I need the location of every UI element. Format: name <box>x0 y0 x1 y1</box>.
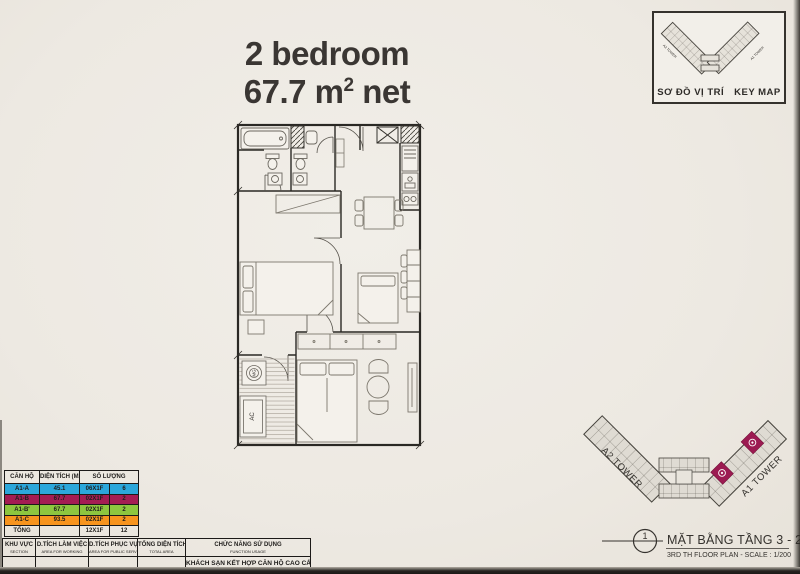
bathtub <box>241 128 289 149</box>
col-header-working-area: D.TÍCH LÀM VIỆC AREA FOR WORKING <box>36 539 89 557</box>
apartment-type-title: 2 bedroom 67.7 m2 net <box>218 36 436 112</box>
sofa <box>401 250 420 312</box>
table-row: A1-C 93.5 02X1F 2 <box>5 515 139 526</box>
key-map-diagram: A2 TOWER A1 TOWER <box>654 13 784 85</box>
header-en: AREA FOR PUBLIC SERVICE <box>89 549 137 554</box>
unit-cell: A1-B <box>5 494 40 505</box>
section-table-header: KHU VỰC SECTION D.TÍCH LÀM VIỆC AREA FOR… <box>3 539 311 557</box>
col-header-total-area: TỔNG DIỆN TÍCH TOTAL AREA <box>138 539 186 557</box>
wardrobe <box>276 195 340 213</box>
washer-label: MG <box>252 369 257 377</box>
kitchen-shaft-x <box>377 127 398 143</box>
round-table-chairs <box>367 359 389 414</box>
col-header-unit: CĂN HỘ <box>5 471 40 484</box>
col-header-service-area: D.TÍCH PHỤC VỤ AREA FOR PUBLIC SERVICE <box>89 539 138 557</box>
detail-number: 1 <box>642 531 647 541</box>
drawing-title-block: 1 MẶT BẰNG TẦNG 3 - 24 3RD TH FLOOR PLAN… <box>598 520 800 564</box>
keymap-caption-en: KEY MAP <box>734 87 781 98</box>
area-cell: 67.7 <box>40 494 80 505</box>
title-area-sup: 2 <box>344 75 354 96</box>
total-label-cell: TỔNG <box>5 526 40 537</box>
door-swings <box>264 127 363 381</box>
col-header-section: KHU VỰC SECTION <box>3 539 36 557</box>
daybed <box>358 273 398 323</box>
area-cell: 67.7 <box>40 505 80 516</box>
unit-cell: A1-C <box>5 515 40 526</box>
kitchen-sink <box>402 173 418 191</box>
apartment-floor-plan: MG AC <box>228 118 432 452</box>
bedroom1-cabinet <box>298 334 396 349</box>
shaft-hatched <box>291 126 304 148</box>
title-area-value: 67.7 m <box>244 73 344 110</box>
scan-edge-bottom <box>0 567 800 574</box>
dining-table <box>355 197 403 229</box>
tv-cabinet <box>408 363 417 412</box>
stove <box>402 193 418 205</box>
kitchen-shaft-hatched <box>401 126 419 143</box>
tower-site-diagram: A2 TOWER A1 TOWER <box>578 398 800 522</box>
table-row: A1-B' 67.7 02X1F 2 <box>5 505 139 516</box>
qty-floor-cell: 02X1F <box>80 515 110 526</box>
plan-title-vi: MẶT BẰNG TẦNG 3 - 24 <box>667 532 800 547</box>
qty-cell: 2 <box>110 515 139 526</box>
ac-label: AC <box>250 412 256 421</box>
header-vi: D.TÍCH LÀM VIỆC <box>36 542 88 549</box>
unit-summary-table: CĂN HỘ DIỆN TÍCH (M2) SỐ LƯỢNG A1-A 45.1… <box>4 470 139 537</box>
header-en: TOTAL AREA <box>138 549 185 554</box>
col-header-area: DIỆN TÍCH (M2) <box>40 471 80 484</box>
table-row: A1-A 45.1 06X1F 6 <box>5 484 139 495</box>
header-vi: D.TÍCH PHỤC VỤ <box>89 542 137 549</box>
qty-floor-cell: 02X1F <box>80 505 110 516</box>
unit-cell: A1-B' <box>5 505 40 516</box>
title-area: 67.7 m2 net <box>218 72 436 112</box>
washing-machine: MG <box>242 361 266 385</box>
qty-cell: 6 <box>110 484 139 495</box>
header-vi: TỔNG DIỆN TÍCH <box>138 542 185 549</box>
qty-floor-cell: 06X1F <box>80 484 110 495</box>
header-en: SECTION <box>3 549 35 554</box>
header-vi: KHU VỰC <box>3 542 35 549</box>
total-qty-floor-cell: 12X1F <box>80 526 110 537</box>
header-en: AREA FOR WORKING <box>36 549 88 554</box>
entry-closet <box>336 139 344 167</box>
col-header-function: CHỨC NĂNG SỬ DỤNG FUNCTION USAGE <box>186 539 311 557</box>
scan-edge-left <box>0 420 2 570</box>
bathroom-sinks <box>268 173 307 185</box>
area-cell: 93.5 <box>40 515 80 526</box>
table-row: A1-B 67.7 02X1F 2 <box>5 494 139 505</box>
a2-tower-wing <box>584 416 670 502</box>
header-en: FUNCTION USAGE <box>186 549 310 554</box>
header-vi: CHỨC NĂNG SỬ DỤNG <box>186 542 310 549</box>
keymap-caption: SƠ ĐỒ VỊ TRÍKEY MAP <box>654 87 784 98</box>
qty-cell: 2 <box>110 505 139 516</box>
bed-2 <box>240 262 333 334</box>
keymap-a1-label: A1 TOWER <box>750 45 766 61</box>
fridge <box>402 146 418 171</box>
title-bedrooms: 2 bedroom <box>218 36 436 72</box>
total-area-cell <box>40 526 80 537</box>
plan-title-en: 3RD TH FLOOR PLAN - SCALE : 1/200 <box>667 552 791 559</box>
center-link-block <box>659 458 709 498</box>
area-cell: 45.1 <box>40 484 80 495</box>
ac-outdoor-unit: AC <box>240 396 266 437</box>
floor-plan-page: { "page": {"background": "#EFECE5"}, "ti… <box>0 0 800 574</box>
bed-1 <box>297 360 357 442</box>
table-total-row: TỔNG 12X1F 12 <box>5 526 139 537</box>
scan-edge-right <box>793 0 800 574</box>
key-map-box: A2 TOWER A1 TOWER SƠ ĐỒ VỊ TRÍKEY MAP <box>652 11 786 104</box>
title-area-net: net <box>354 73 411 110</box>
total-qty-cell: 12 <box>110 526 139 537</box>
qty-cell: 2 <box>110 494 139 505</box>
unit-cell: A1-A <box>5 484 40 495</box>
unit-table-header: CĂN HỘ DIỆN TÍCH (M2) SỐ LƯỢNG <box>5 471 139 484</box>
col-header-qty: SỐ LƯỢNG <box>80 471 139 484</box>
keymap-caption-vi: SƠ ĐỒ VỊ TRÍ <box>657 87 724 98</box>
qty-floor-cell: 02X1F <box>80 494 110 505</box>
